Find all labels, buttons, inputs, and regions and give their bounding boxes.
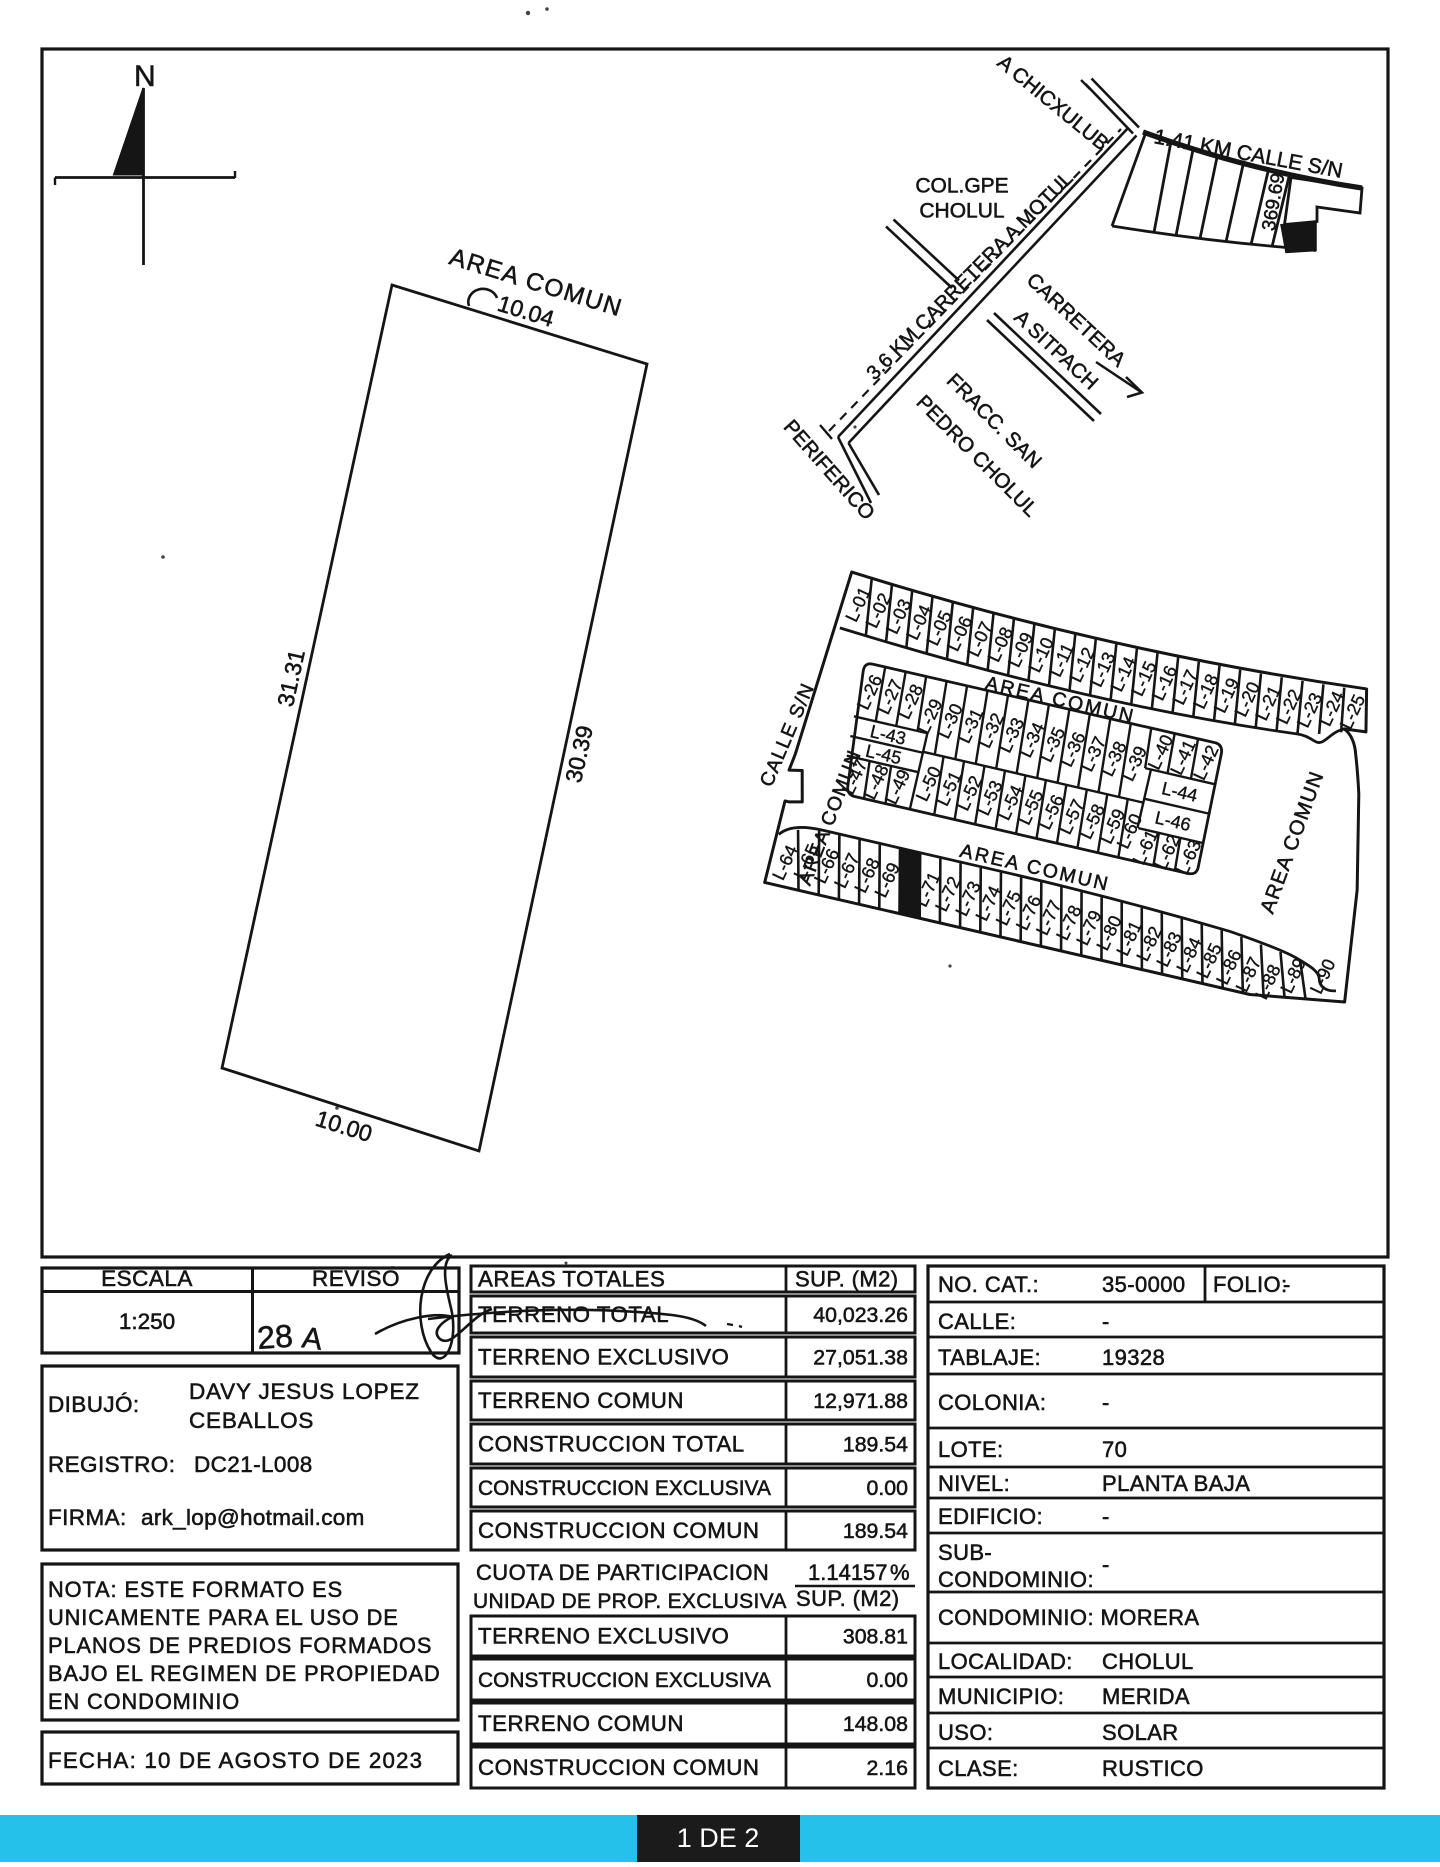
svg-text:LOCALIDAD:: LOCALIDAD: bbox=[938, 1649, 1073, 1674]
svg-text:CONDOMINIO: MORERA: CONDOMINIO: MORERA bbox=[938, 1605, 1199, 1630]
svg-text:70: 70 bbox=[1102, 1437, 1127, 1462]
svg-text:-: - bbox=[1102, 1309, 1110, 1334]
svg-text:PLANTA BAJA: PLANTA BAJA bbox=[1102, 1471, 1250, 1496]
svg-text:ESCALA: ESCALA bbox=[101, 1266, 193, 1291]
svg-text:UNIDAD DE PROP. EXCLUSIVA: UNIDAD DE PROP. EXCLUSIVA bbox=[473, 1590, 787, 1613]
svg-text:35-0000: 35-0000 bbox=[1102, 1272, 1186, 1297]
svg-text:CLASE:: CLASE: bbox=[938, 1756, 1019, 1781]
svg-text:308.81: 308.81 bbox=[843, 1625, 908, 1649]
svg-text:0.00: 0.00 bbox=[867, 1476, 909, 1500]
svg-text:CONSTRUCCION COMUN: CONSTRUCCION COMUN bbox=[478, 1518, 760, 1543]
svg-text:A: A bbox=[300, 1321, 324, 1356]
svg-text:MERIDA: MERIDA bbox=[1102, 1684, 1190, 1709]
svg-text:CALLE S/N: CALLE S/N bbox=[756, 680, 819, 790]
svg-text:FIRMA:: FIRMA: bbox=[48, 1505, 127, 1530]
svg-text:BAJO EL REGIMEN DE PROPIEDAD: BAJO EL REGIMEN DE PROPIEDAD bbox=[48, 1661, 441, 1686]
svg-text:28: 28 bbox=[256, 1318, 294, 1356]
svg-text:CUOTA DE PARTICIPACION: CUOTA DE PARTICIPACION bbox=[476, 1560, 769, 1585]
svg-text:AREA COMUN: AREA COMUN bbox=[1256, 768, 1329, 917]
svg-text:TERRENO TOTAL: TERRENO TOTAL bbox=[478, 1302, 669, 1327]
svg-text:-: - bbox=[1102, 1552, 1110, 1577]
svg-text:AREAS TOTALES: AREAS TOTALES bbox=[478, 1267, 665, 1292]
svg-text:FOLIO:: FOLIO: bbox=[1213, 1272, 1288, 1297]
svg-text:CEBALLOS: CEBALLOS bbox=[189, 1408, 314, 1433]
svg-text:2.16: 2.16 bbox=[867, 1756, 908, 1780]
svg-text:UNICAMENTE PARA EL USO DE: UNICAMENTE PARA EL USO DE bbox=[48, 1605, 399, 1630]
svg-text:USO:: USO: bbox=[938, 1720, 993, 1745]
svg-text:RUSTICO: RUSTICO bbox=[1102, 1756, 1204, 1781]
svg-text:REGISTRO:: REGISTRO: bbox=[48, 1452, 175, 1477]
svg-text:148.08: 148.08 bbox=[843, 1712, 908, 1736]
svg-text:L-44: L-44 bbox=[1160, 778, 1200, 806]
svg-text:12,971.88: 12,971.88 bbox=[813, 1389, 908, 1413]
svg-text:189.54: 189.54 bbox=[843, 1433, 908, 1457]
svg-text:%: % bbox=[890, 1560, 910, 1585]
svg-text:SUP. (M2): SUP. (M2) bbox=[795, 1267, 898, 1292]
svg-text:NOTA: ESTE FORMATO ES: NOTA: ESTE FORMATO ES bbox=[48, 1577, 343, 1602]
svg-text:1.14157: 1.14157 bbox=[808, 1560, 888, 1585]
svg-text:DAVY JESUS LOPEZ: DAVY JESUS LOPEZ bbox=[189, 1379, 420, 1404]
svg-text:-: - bbox=[1102, 1390, 1110, 1415]
svg-text:TERRENO EXCLUSIVO: TERRENO EXCLUSIVO bbox=[478, 1624, 729, 1649]
svg-text:CONSTRUCCION COMUN: CONSTRUCCION COMUN bbox=[478, 1755, 760, 1780]
svg-text:SUB-: SUB- bbox=[938, 1540, 992, 1565]
svg-text:PLANOS DE PREDIOS FORMADOS: PLANOS DE PREDIOS FORMADOS bbox=[48, 1633, 432, 1658]
svg-text:COLONIA:: COLONIA: bbox=[938, 1390, 1046, 1415]
svg-text:EN CONDOMINIO: EN CONDOMINIO bbox=[48, 1689, 240, 1714]
svg-text:NIVEL:: NIVEL: bbox=[938, 1471, 1010, 1496]
svg-text:ark_lop@hotmail.com: ark_lop@hotmail.com bbox=[141, 1505, 365, 1530]
svg-text:19328: 19328 bbox=[1102, 1345, 1165, 1370]
svg-text:EDIFICIO:: EDIFICIO: bbox=[938, 1504, 1043, 1529]
svg-text:CONSTRUCCION EXCLUSIVA: CONSTRUCCION EXCLUSIVA bbox=[478, 1669, 771, 1692]
svg-text:TABLAJE:: TABLAJE: bbox=[938, 1345, 1041, 1370]
svg-text:SOLAR: SOLAR bbox=[1102, 1720, 1179, 1745]
svg-text:27,051.38: 27,051.38 bbox=[813, 1346, 908, 1370]
svg-text:DC21-L008: DC21-L008 bbox=[194, 1452, 313, 1477]
svg-text:0.00: 0.00 bbox=[867, 1668, 909, 1692]
svg-text:LOTE:: LOTE: bbox=[938, 1437, 1004, 1462]
svg-text:TERRENO COMUN: TERRENO COMUN bbox=[478, 1388, 684, 1413]
svg-text:CONDOMINIO:: CONDOMINIO: bbox=[938, 1567, 1094, 1592]
svg-text:-: - bbox=[1283, 1272, 1291, 1297]
svg-text:-: - bbox=[1102, 1504, 1110, 1529]
svg-text:30.39: 30.39 bbox=[560, 723, 598, 785]
svg-text:COL.GPE: COL.GPE bbox=[915, 175, 1008, 198]
svg-text:SUP. (M2): SUP. (M2) bbox=[796, 1586, 899, 1611]
svg-text:TERRENO COMUN: TERRENO COMUN bbox=[478, 1711, 684, 1736]
svg-text:MUNICIPIO:: MUNICIPIO: bbox=[938, 1684, 1064, 1709]
svg-text:REVISÓ: REVISÓ bbox=[312, 1266, 400, 1291]
svg-text:CHOLUL: CHOLUL bbox=[919, 200, 1004, 223]
svg-text:CHOLUL: CHOLUL bbox=[1102, 1649, 1194, 1674]
svg-text:A CHICXULUB: A CHICXULUB bbox=[993, 51, 1113, 156]
svg-text:10.00: 10.00 bbox=[313, 1105, 376, 1147]
svg-text:1 DE 2: 1 DE 2 bbox=[677, 1823, 760, 1853]
svg-text:CALLE:: CALLE: bbox=[938, 1309, 1016, 1334]
svg-text:L-46: L-46 bbox=[1153, 807, 1193, 835]
svg-text:1:250: 1:250 bbox=[119, 1309, 175, 1334]
svg-text:1.41 KM CALLE S/N: 1.41 KM CALLE S/N bbox=[1152, 125, 1344, 182]
svg-text:DIBUJÓ:: DIBUJÓ: bbox=[48, 1392, 140, 1417]
svg-text:31.31: 31.31 bbox=[272, 647, 310, 709]
svg-text:CONSTRUCCION EXCLUSIVA: CONSTRUCCION EXCLUSIVA bbox=[478, 1477, 771, 1500]
svg-text:TERRENO EXCLUSIVO: TERRENO EXCLUSIVO bbox=[478, 1345, 729, 1370]
svg-text:40,023.26: 40,023.26 bbox=[813, 1303, 908, 1327]
svg-text:189.54: 189.54 bbox=[843, 1519, 908, 1543]
svg-text:CONSTRUCCION TOTAL: CONSTRUCCION TOTAL bbox=[478, 1432, 745, 1457]
svg-text:FECHA: 10 DE AGOSTO DE 2023: FECHA: 10 DE AGOSTO DE 2023 bbox=[48, 1748, 423, 1773]
svg-text:NO. CAT.:: NO. CAT.: bbox=[938, 1272, 1039, 1297]
